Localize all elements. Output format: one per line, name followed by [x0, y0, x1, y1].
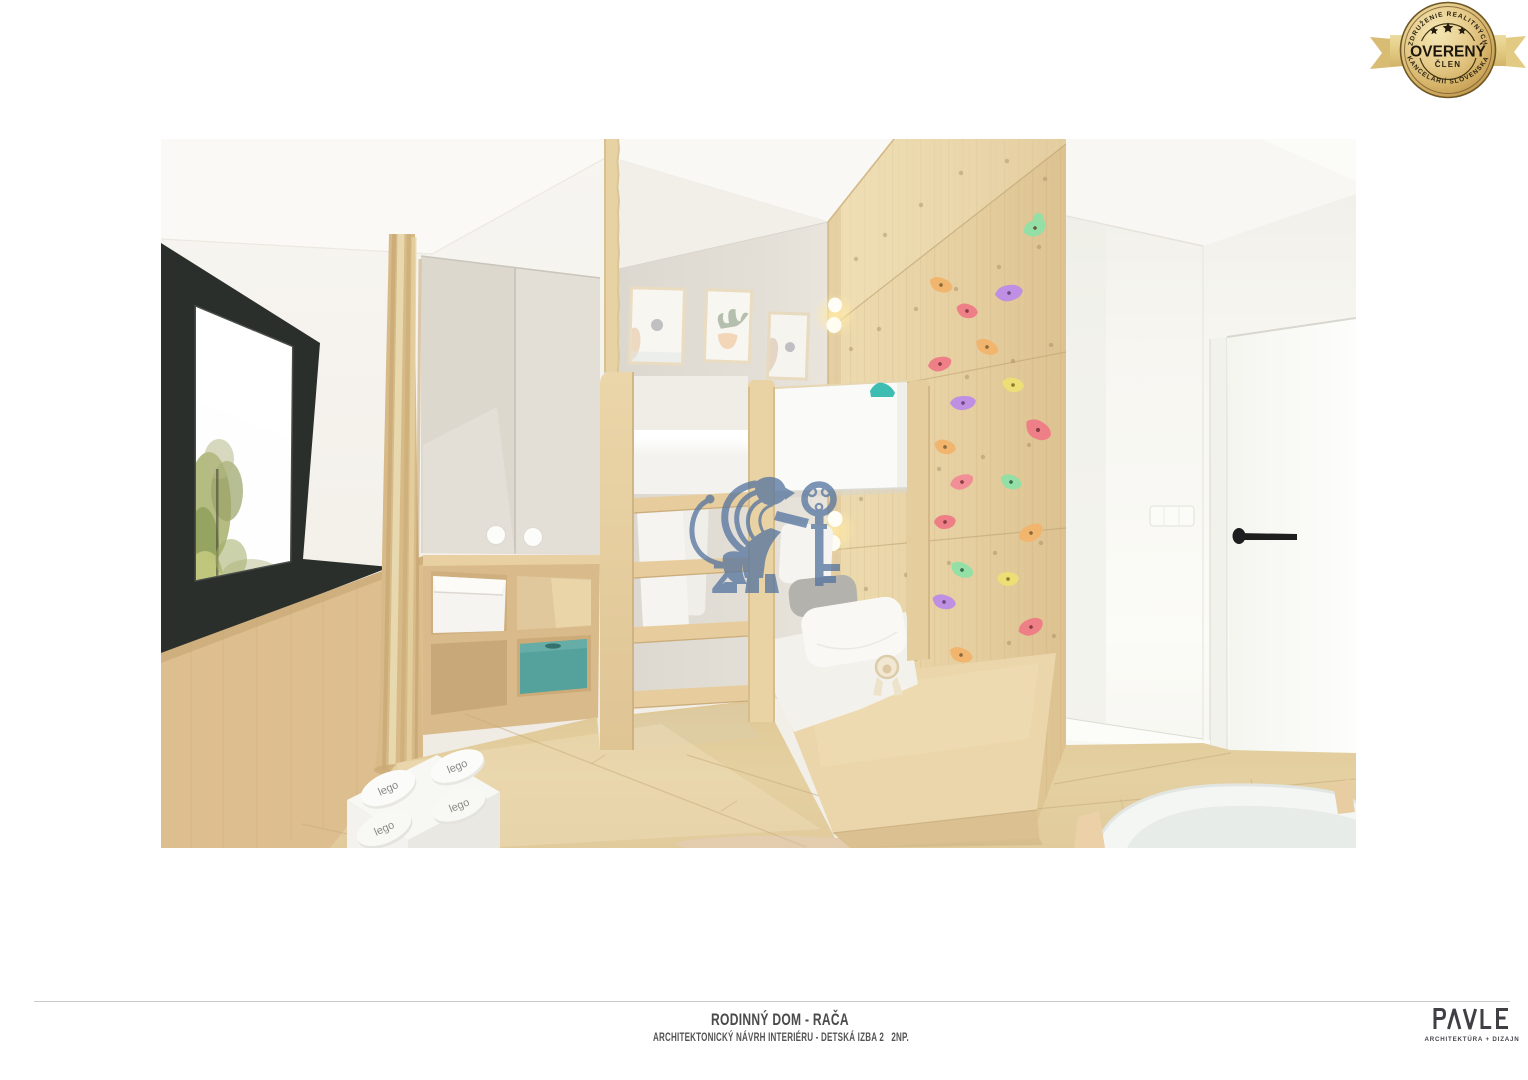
svg-text:OVERENÝ: OVERENÝ	[1410, 43, 1486, 61]
svg-text:Z: Z	[711, 555, 737, 603]
svg-text:ČLEN: ČLEN	[1435, 60, 1462, 69]
svg-text:ARCHITEKTÚRA + DIZAJN: ARCHITEKTÚRA + DIZAJN	[1424, 1036, 1519, 1043]
